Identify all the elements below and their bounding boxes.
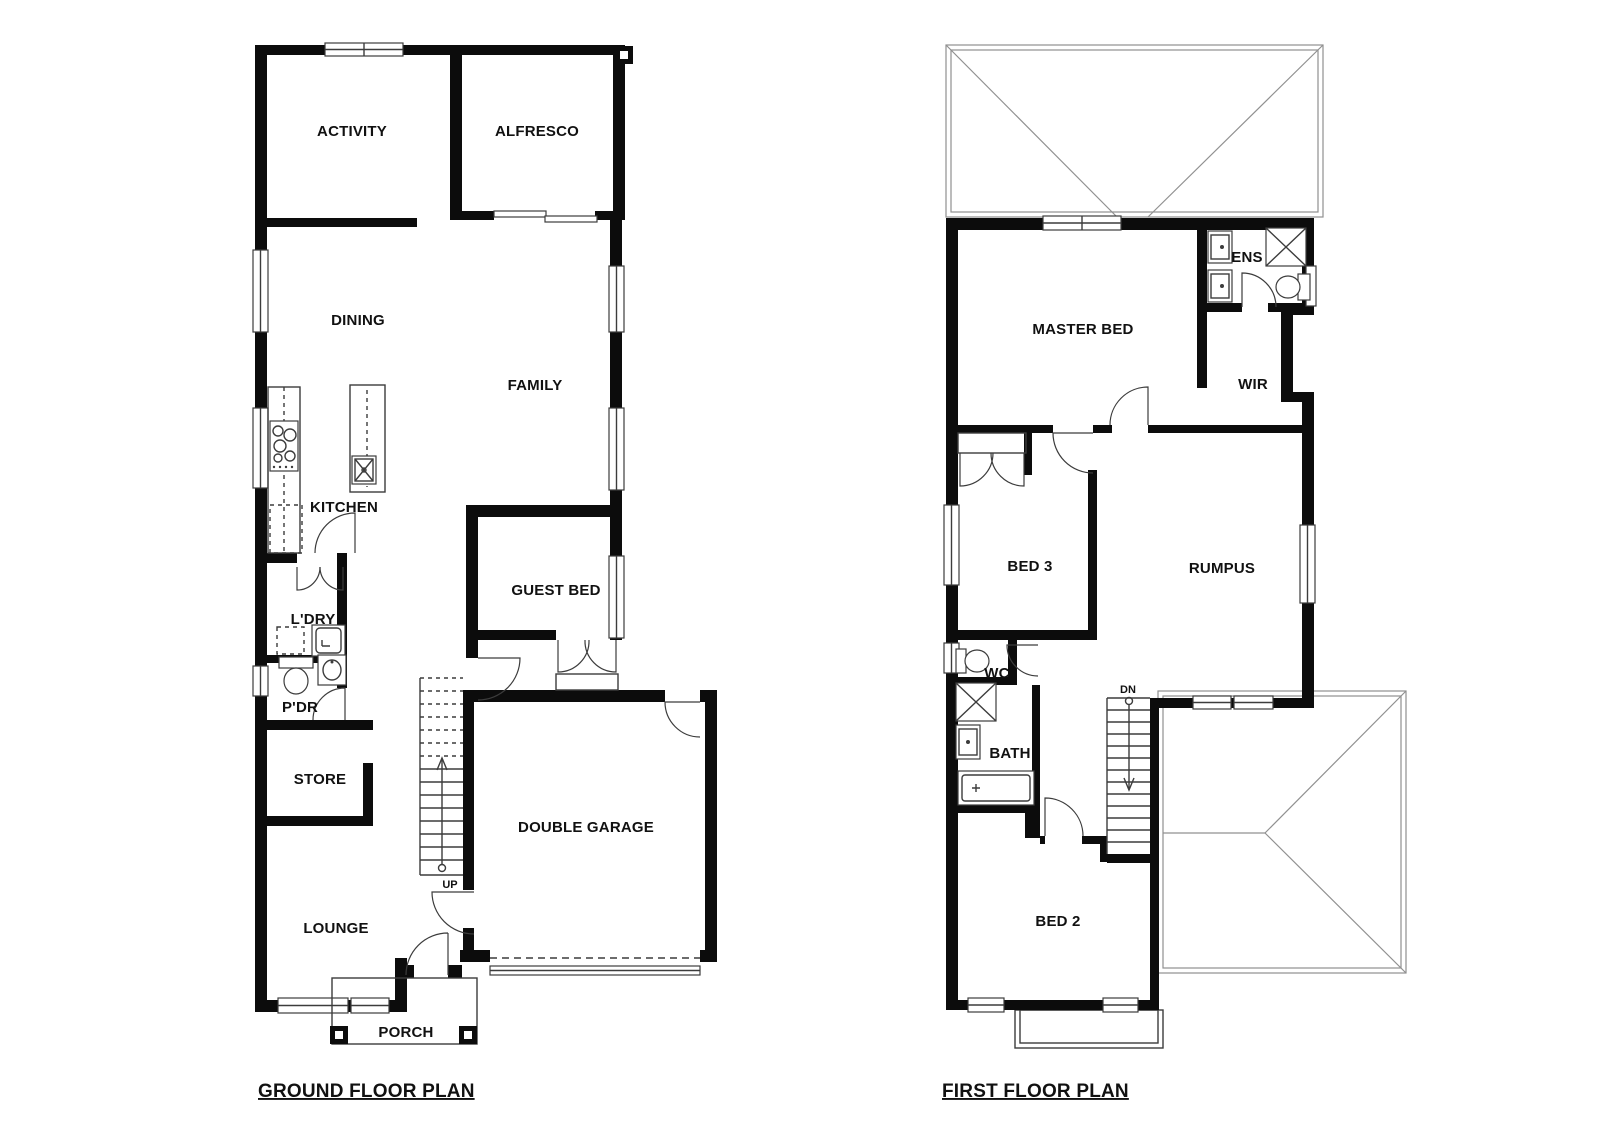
powder-fixtures [279, 655, 346, 694]
room-label-double-garage: DOUBLE GARAGE [518, 819, 654, 836]
room-label-master-bed: MASTER BED [1032, 321, 1133, 338]
floor-plan-drawing: ACTIVITY ALFRESCO DINING FAMILY KITCHEN … [0, 0, 1600, 1132]
room-label-store: STORE [294, 771, 346, 788]
bathtub-icon [958, 771, 1034, 805]
laundry-fixtures [277, 625, 345, 656]
room-label-wc: WC [984, 665, 1009, 682]
kitchen-fixtures [268, 385, 385, 553]
room-label-dining: DINING [331, 312, 385, 329]
stairs-down [1107, 698, 1150, 855]
room-label-alfresco: ALFRESCO [495, 123, 579, 140]
ground-floor-plan: ACTIVITY ALFRESCO DINING FAMILY KITCHEN … [253, 43, 717, 1102]
vanity-icon [956, 725, 980, 759]
bath-fixtures [956, 683, 1034, 805]
toilet-icon [279, 657, 313, 694]
toilet-icon [1276, 274, 1310, 300]
roof-outline-lower [1158, 691, 1406, 973]
stair-label-up: UP [442, 879, 457, 891]
roof-outline-top [946, 45, 1323, 217]
room-label-porch: PORCH [378, 1024, 433, 1041]
basin-icon [318, 655, 346, 685]
room-label-wir: WIR [1238, 376, 1268, 393]
room-label-bath: BATH [989, 745, 1030, 762]
stairs-up [420, 678, 463, 875]
room-label-guest-bed: GUEST BED [511, 582, 600, 599]
vanity-icon [1208, 270, 1232, 302]
alfresco-post [615, 46, 633, 64]
floor-plan-page: ACTIVITY ALFRESCO DINING FAMILY KITCHEN … [0, 0, 1600, 1132]
first-floor-title: FIRST FLOOR PLAN [942, 1081, 1129, 1102]
ground-floor-walls [255, 45, 717, 1012]
room-label-bed2: BED 2 [1035, 913, 1080, 930]
room-label-activity: ACTIVITY [317, 123, 387, 140]
ground-floor-doors [297, 513, 700, 975]
room-label-rumpus: RUMPUS [1189, 560, 1255, 577]
ground-floor-title: GROUND FLOOR PLAN [258, 1081, 475, 1102]
shower-icon [956, 683, 996, 721]
island-bench [350, 385, 385, 492]
cooktop-icon [270, 421, 298, 471]
room-label-family: FAMILY [508, 377, 563, 394]
shower-icon [1266, 228, 1306, 266]
room-label-lounge: LOUNGE [303, 920, 368, 937]
sliding-door [494, 211, 597, 222]
stair-label-dn: DN [1120, 684, 1136, 696]
garage-door [490, 958, 700, 975]
balcony-outline [1015, 1010, 1163, 1048]
room-label-bed3: BED 3 [1007, 558, 1052, 575]
sink-icon [352, 456, 376, 484]
room-label-ensuite: ENS [1231, 249, 1262, 266]
room-label-powder: P'DR [282, 699, 318, 716]
room-label-kitchen: KITCHEN [310, 499, 378, 516]
vanity-icon [1208, 231, 1232, 263]
room-label-laundry: L'DRY [291, 611, 336, 628]
first-floor-plan: MASTER BED ENS WIR BED 3 RUMPUS WC BATH … [942, 45, 1406, 1102]
